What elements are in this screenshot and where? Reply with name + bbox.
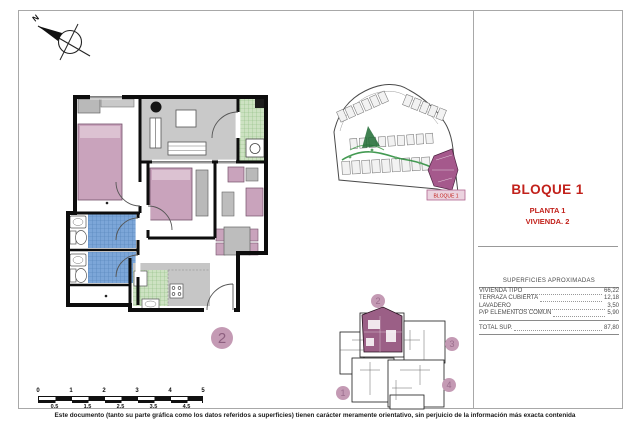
bathroom-1-floor <box>88 214 136 248</box>
table-row: TERRAZA CUBIERTA 12,18 <box>479 296 619 302</box>
row-value: 12,18 <box>604 296 619 302</box>
bathroom-1-fixtures <box>70 216 87 245</box>
scale-tick: 0 <box>36 388 39 394</box>
row-label: LAVADERO <box>479 304 511 310</box>
scale-tick: 4 <box>168 388 171 394</box>
north-label: N <box>31 13 41 24</box>
key-plan-highlighted-unit <box>362 307 402 352</box>
title-block: BLOQUE 1 PLANTA 1 VIVIENDA. 2 <box>473 182 622 226</box>
key-plan-unit-4-badge: 4 <box>442 378 456 392</box>
scale-bar-graphic <box>38 396 203 403</box>
scale-tick: 2.5 <box>117 404 125 410</box>
svg-text:3: 3 <box>449 339 454 349</box>
dot-leader <box>514 326 602 331</box>
row-value: 3,50 <box>607 304 619 310</box>
row-value: 5,90 <box>607 311 619 317</box>
bedroom-2-furniture <box>150 168 208 220</box>
svg-text:BLOQUE 1: BLOQUE 1 <box>433 194 458 200</box>
total-label: TOTAL SUP. <box>479 326 512 332</box>
floor-title: PLANTA 1 <box>473 206 622 215</box>
total-value: 87,80 <box>604 326 619 332</box>
living-room-furniture <box>222 167 263 216</box>
site-block-label: BLOQUE 1 <box>427 190 465 200</box>
row-label: VIVIENDA TIPO <box>479 289 522 295</box>
table-row: P/P ELEMENTOS COMUN 5,90 <box>479 311 619 317</box>
scale-tick: 1 <box>69 388 72 394</box>
scale-tick: 3 <box>135 388 138 394</box>
panel-separator <box>478 246 618 247</box>
scale-tick: 0.5 <box>51 404 59 410</box>
row-label: TERRAZA CUBIERTA <box>479 296 538 302</box>
bathroom-2-fixtures <box>70 254 87 283</box>
dot-leader <box>553 312 605 317</box>
scale-bar-row <box>39 400 202 404</box>
table-total-row: TOTAL SUP. 87,80 <box>479 326 619 332</box>
dot-leader <box>540 297 602 302</box>
svg-text:2: 2 <box>375 296 380 306</box>
svg-text:4: 4 <box>446 380 451 390</box>
site-plan: BLOQUE 1 <box>326 80 466 205</box>
row-label: P/P ELEMENTOS COMUN <box>479 311 551 317</box>
scale-tick: 5 <box>201 388 204 394</box>
areas-table-header: SUPERFICIES APROXIMADAS <box>479 278 619 284</box>
plan-sheet: N <box>0 0 630 423</box>
north-arrow-icon: N <box>28 10 98 66</box>
floor-plan: 2 <box>58 82 294 358</box>
row-value: 66,22 <box>604 289 619 295</box>
bedroom-1-furniture <box>78 99 134 200</box>
areas-table: SUPERFICIES APROXIMADAS VIVIENDA TIPO 66… <box>479 268 619 335</box>
table-row: VIVIENDA TIPO 66,22 <box>479 289 619 295</box>
disclaimer-text: Este documento (tanto su parte gráfica c… <box>0 412 630 419</box>
dot-leader <box>513 305 606 310</box>
scale-tick: 2 <box>102 388 105 394</box>
unit-number: 2 <box>218 330 226 347</box>
key-plan: 2 3 4 1 <box>330 283 466 415</box>
table-rule <box>479 320 619 321</box>
key-plan-unit-1-badge: 1 <box>336 386 350 400</box>
key-plan-unit-2-badge: 2 <box>371 294 385 308</box>
dining-set <box>216 227 258 255</box>
block-title: BLOQUE 1 <box>473 182 622 197</box>
unit-number-badge: 2 <box>211 327 233 349</box>
dot-leader <box>524 290 602 295</box>
scale-tick: 1.5 <box>84 404 92 410</box>
scale-tick: 3.5 <box>150 404 158 410</box>
scale-tick: 4.5 <box>183 404 191 410</box>
unit-title: VIVIENDA. 2 <box>473 217 622 226</box>
table-rule <box>479 334 619 335</box>
table-row: LAVADERO 3,50 <box>479 304 619 310</box>
svg-text:1: 1 <box>340 388 345 398</box>
key-plan-unit-3-badge: 3 <box>445 337 459 351</box>
